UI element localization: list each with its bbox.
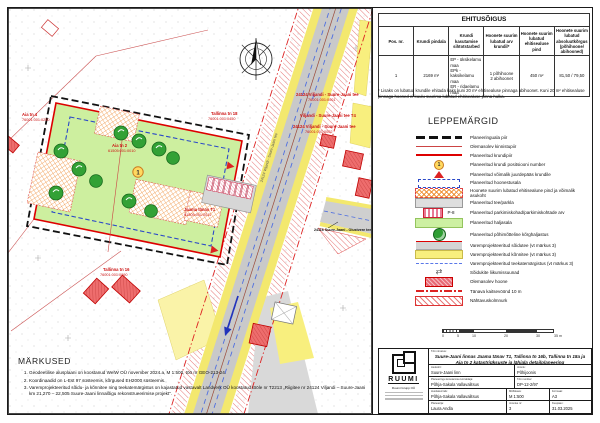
panel-divider — [372, 7, 373, 415]
sheet-frame — [7, 7, 593, 415]
drawing-sheet: 1 — [0, 0, 600, 423]
